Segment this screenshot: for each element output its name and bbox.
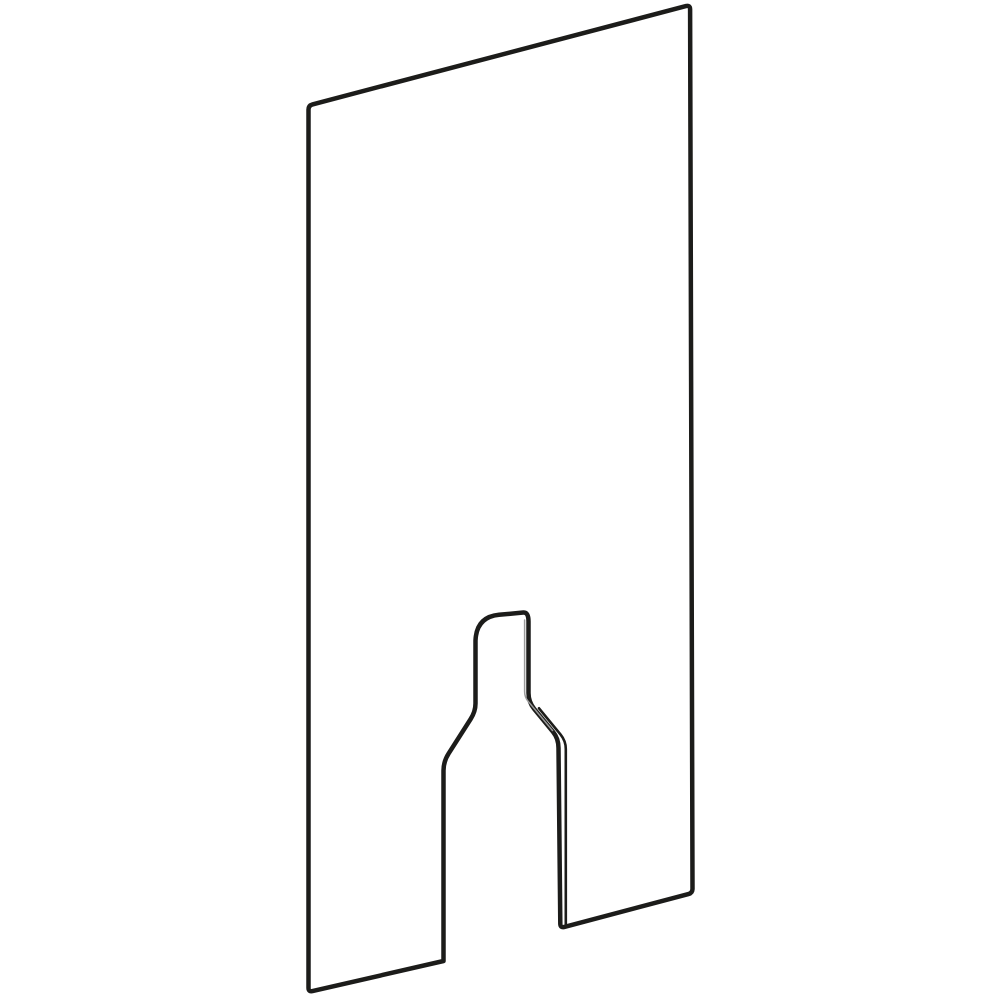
panel-illustration — [0, 0, 1000, 1000]
illustration-canvas — [0, 0, 1000, 1000]
panel-outline-with-cutout — [309, 6, 693, 991]
